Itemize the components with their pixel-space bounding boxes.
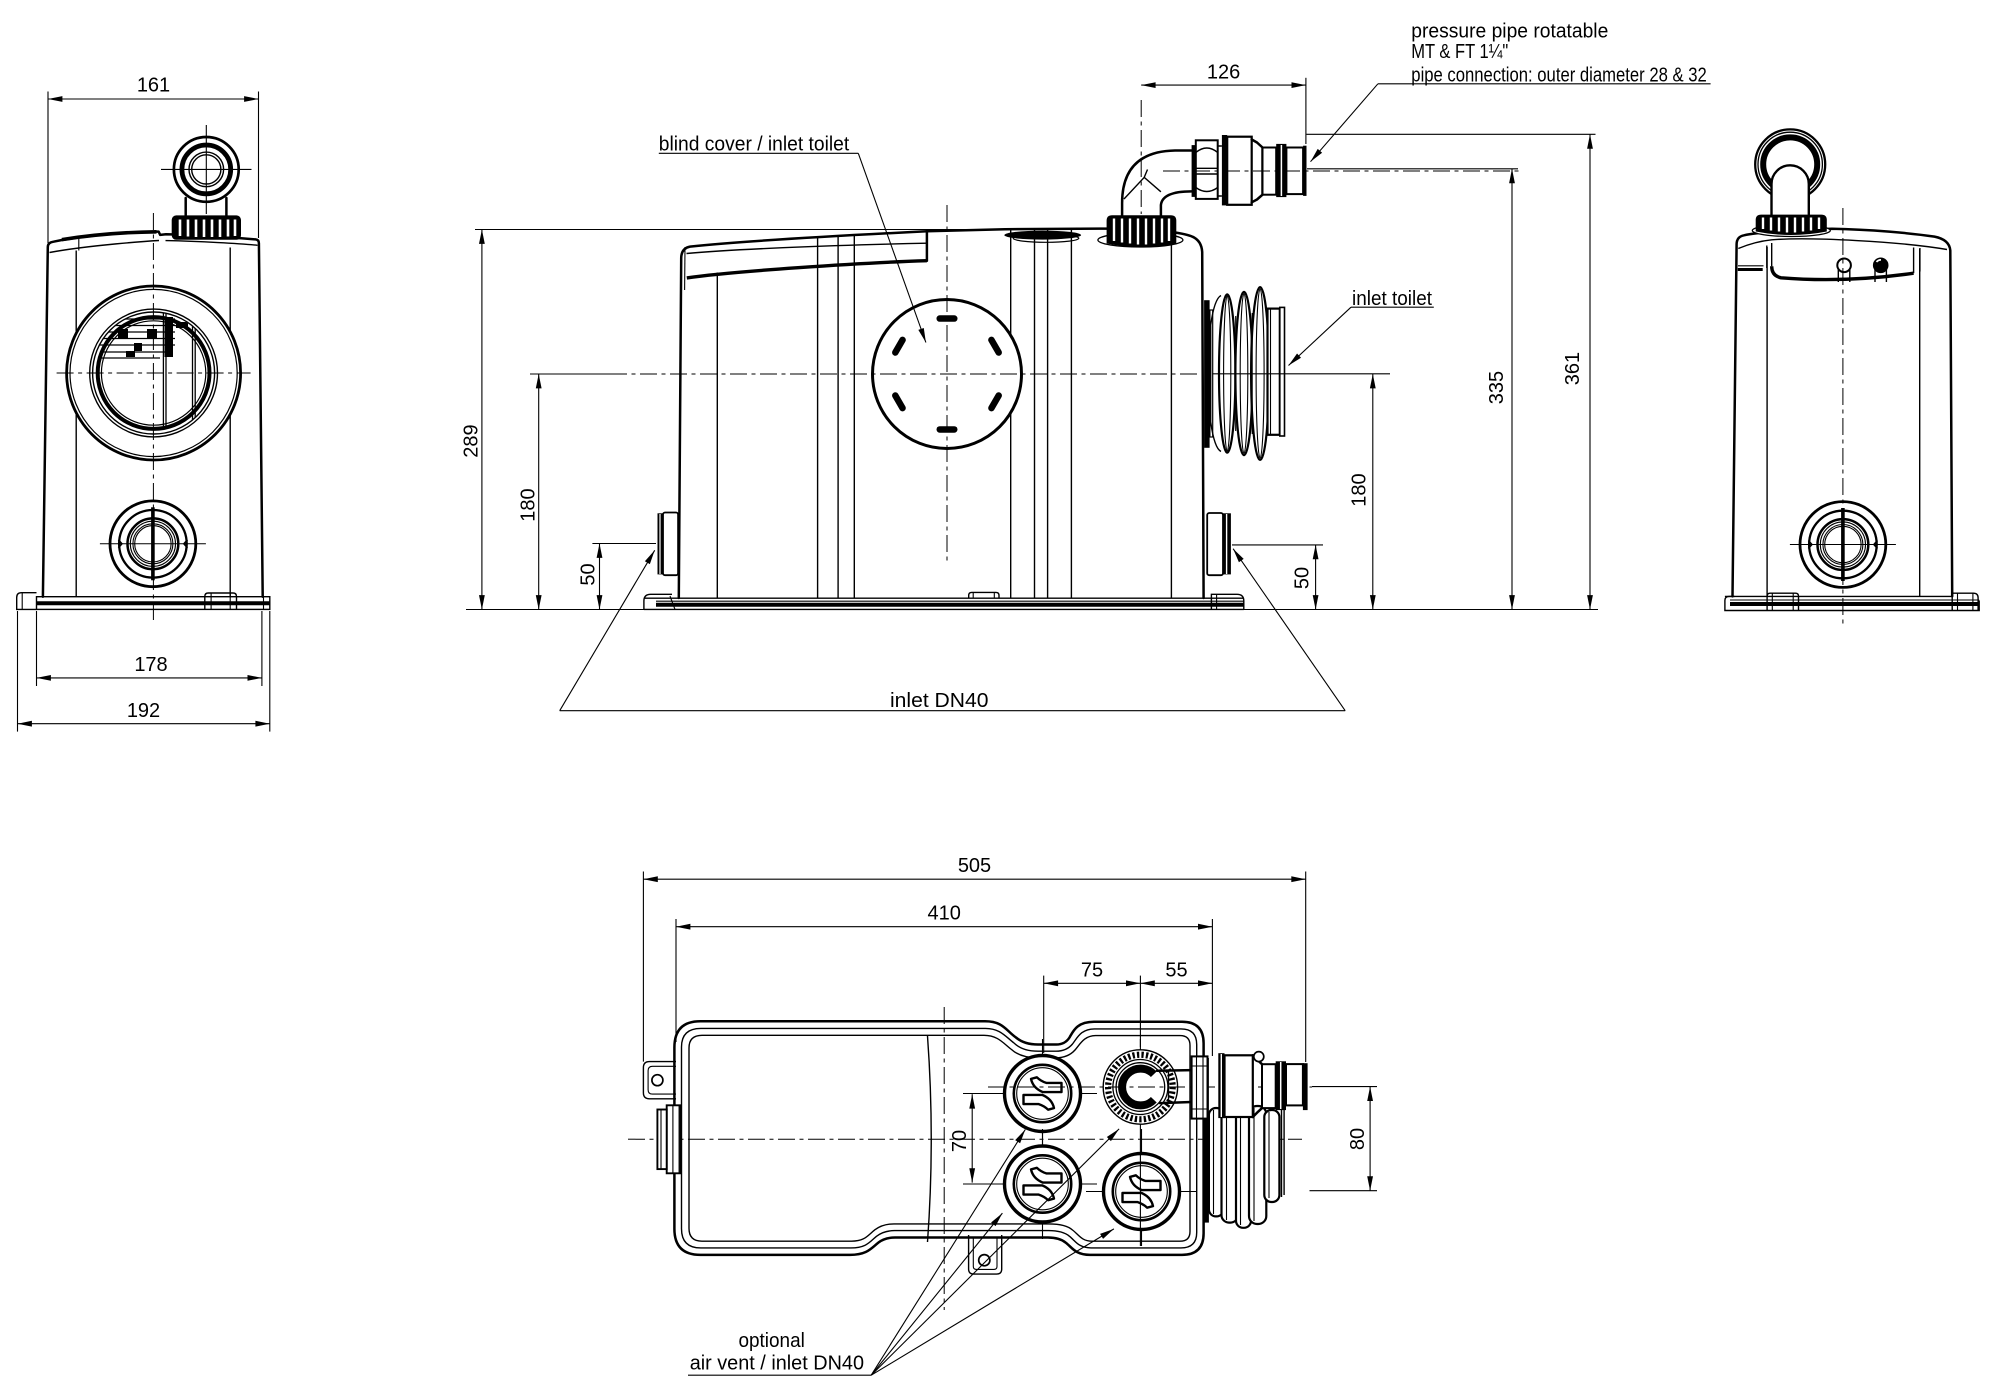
svg-text:289: 289 (461, 424, 483, 457)
svg-text:80: 80 (1347, 1128, 1369, 1150)
svg-text:air vent / inlet DN40: air vent / inlet DN40 (690, 1353, 864, 1375)
svg-text:410: 410 (928, 903, 961, 925)
svg-text:inlet DN40: inlet DN40 (890, 690, 989, 712)
svg-text:505: 505 (958, 855, 991, 877)
svg-text:126: 126 (1207, 62, 1240, 84)
svg-text:50: 50 (578, 563, 600, 585)
svg-text:75: 75 (1081, 960, 1103, 982)
svg-text:50: 50 (1292, 567, 1314, 589)
svg-text:161: 161 (137, 75, 170, 97)
svg-text:70: 70 (949, 1130, 971, 1152)
svg-text:optional: optional (739, 1330, 805, 1352)
svg-text:MT & FT 1¼": MT & FT 1¼" (1411, 41, 1508, 63)
svg-text:pipe connection: outer diamete: pipe connection: outer diameter 28 & 32 (1411, 64, 1707, 86)
svg-text:335: 335 (1486, 371, 1508, 404)
svg-text:blind cover / inlet toilet: blind cover / inlet toilet (659, 134, 850, 156)
svg-text:180: 180 (1349, 473, 1371, 506)
svg-text:361: 361 (1562, 352, 1584, 385)
svg-text:180: 180 (518, 488, 540, 521)
svg-text:pressure pipe rotatable: pressure pipe rotatable (1411, 21, 1608, 43)
svg-text:55: 55 (1165, 960, 1187, 982)
svg-text:178: 178 (134, 654, 167, 676)
svg-text:192: 192 (127, 700, 160, 722)
